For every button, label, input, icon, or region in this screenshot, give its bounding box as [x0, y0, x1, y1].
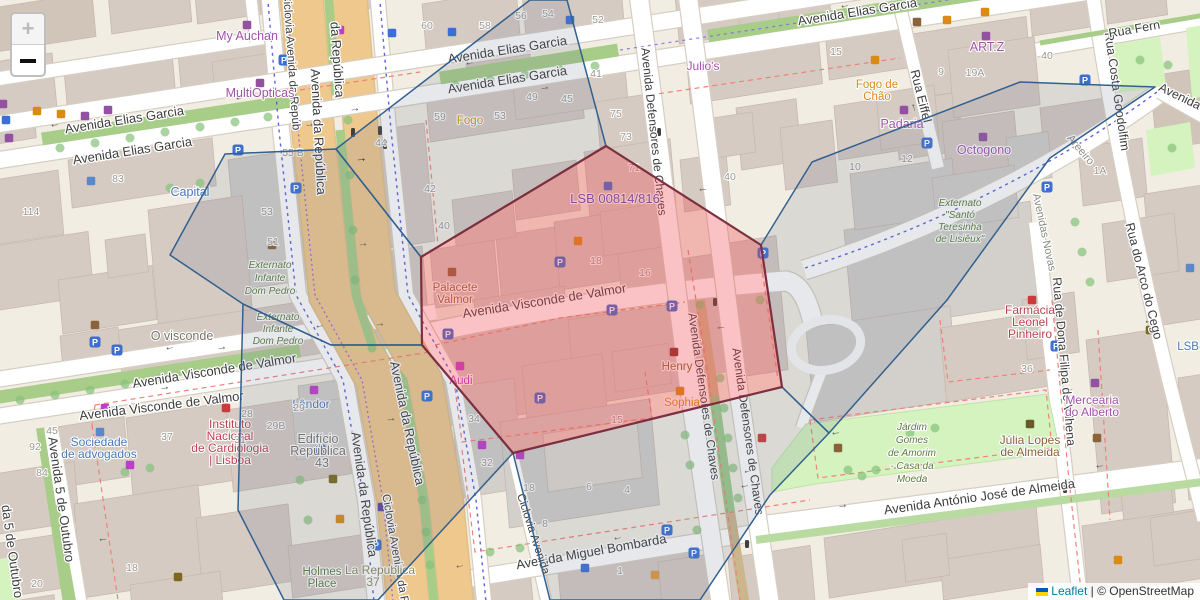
- svg-text:75: 75: [610, 108, 622, 120]
- svg-text:1A: 1A: [1094, 165, 1107, 177]
- svg-text:Julio's: Julio's: [687, 59, 720, 73]
- svg-text:←: ←: [48, 117, 61, 131]
- svg-text:Moeda: Moeda: [897, 474, 928, 485]
- svg-text:Pinheiro: Pinheiro: [1008, 327, 1052, 341]
- svg-text:52: 52: [592, 14, 604, 26]
- svg-text:←: ←: [453, 558, 466, 572]
- svg-text:37: 37: [161, 431, 173, 443]
- svg-text:P: P: [1044, 183, 1050, 193]
- svg-text:58: 58: [479, 20, 491, 32]
- svg-text:36: 36: [1021, 363, 1033, 375]
- svg-text:40: 40: [724, 171, 736, 183]
- svg-text:41: 41: [590, 68, 602, 80]
- svg-text:do Alberto: do Alberto: [1065, 405, 1119, 419]
- svg-text:Fogo de: Fogo de: [856, 79, 898, 91]
- svg-text:92: 92: [29, 441, 41, 453]
- svg-text:P: P: [92, 338, 98, 348]
- svg-text:18: 18: [126, 562, 138, 574]
- svg-text:Chão: Chão: [863, 91, 891, 103]
- svg-text:20: 20: [31, 578, 43, 590]
- svg-text:73: 73: [620, 131, 632, 143]
- svg-text:Gomes: Gomes: [896, 435, 928, 446]
- svg-text:19A: 19A: [966, 67, 985, 79]
- svg-text:My Auchan: My Auchan: [216, 29, 278, 43]
- svg-text:P: P: [114, 346, 120, 356]
- svg-text:ART.Z: ART.Z: [970, 40, 1005, 54]
- svg-text:LSB-: LSB-: [1177, 341, 1200, 353]
- svg-text:←: ←: [1093, 458, 1106, 471]
- svg-text:de Almeida: de Almeida: [1000, 445, 1060, 459]
- svg-text:O visconde: O visconde: [151, 329, 214, 343]
- svg-text:de Amorim: de Amorim: [888, 448, 936, 459]
- svg-text:de advogados: de advogados: [61, 447, 136, 461]
- svg-text:83: 83: [112, 173, 124, 185]
- svg-text:↑: ↑: [349, 106, 361, 113]
- svg-text:114: 114: [23, 206, 40, 218]
- svg-text:Járdim: Járdim: [896, 422, 927, 433]
- svg-text:84: 84: [36, 467, 48, 479]
- svg-text:60: 60: [421, 20, 433, 32]
- svg-text:- Casa da: - Casa da: [890, 461, 934, 472]
- svg-text:→: →: [215, 340, 228, 354]
- svg-text:15: 15: [830, 46, 842, 58]
- svg-text:9: 9: [938, 66, 944, 78]
- svg-text:→: →: [836, 498, 849, 511]
- svg-text:MultiOpticas: MultiOpticas: [226, 86, 295, 100]
- svg-text:40: 40: [1041, 50, 1053, 62]
- svg-text:45: 45: [46, 425, 58, 437]
